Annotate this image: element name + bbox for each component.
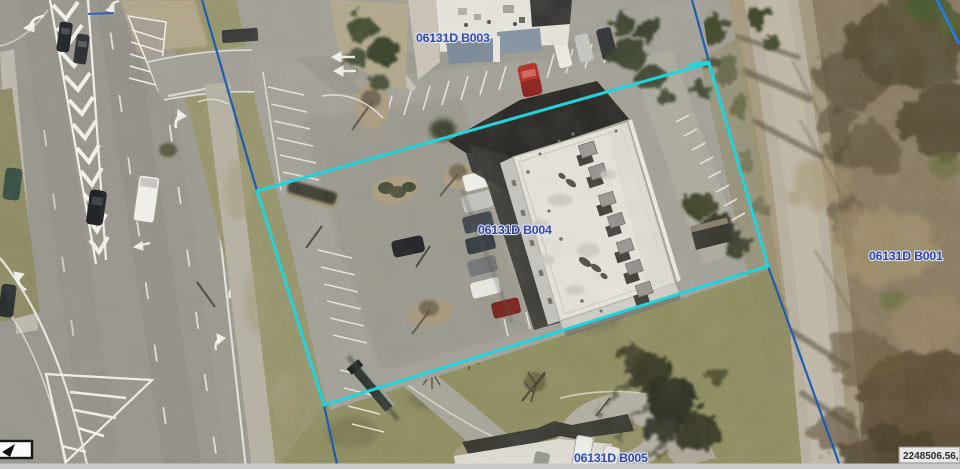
svg-text:06131D B001: 06131D B001 (869, 249, 943, 263)
svg-text:06131D B003: 06131D B003 (416, 31, 490, 45)
svg-text:06131D B005: 06131D B005 (574, 451, 648, 465)
svg-text:2248506.56,: 2248506.56, (903, 451, 959, 462)
svg-text:06131D B004: 06131D B004 (478, 223, 552, 237)
